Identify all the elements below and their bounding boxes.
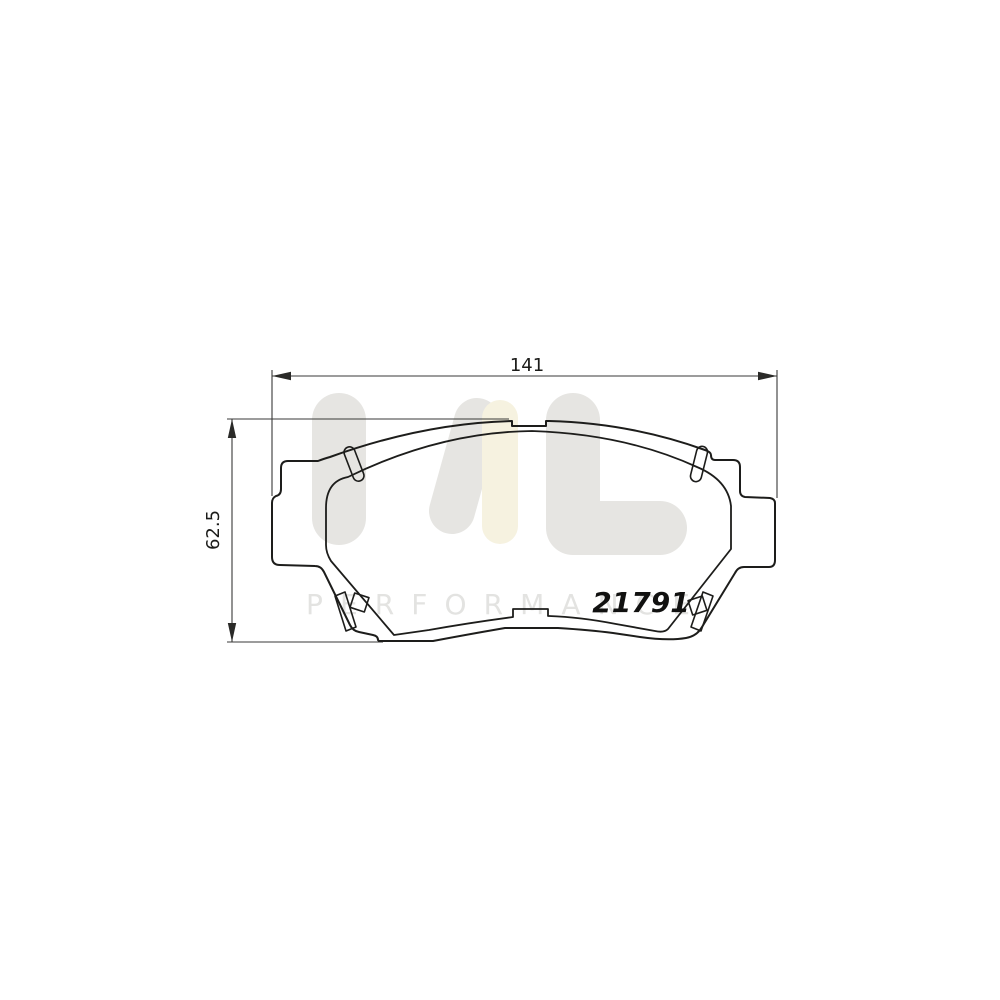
height-arrow-bottom	[228, 623, 236, 642]
part-number: 21791	[592, 586, 689, 619]
width-arrow-left	[272, 372, 291, 380]
watermark-m-diagonal-stroke	[452, 421, 477, 511]
product-image-canvas: PERFORMANCE 141 62.5	[0, 0, 1000, 1000]
width-dimension-label: 141	[510, 355, 544, 376]
brake-pad-technical-drawing: PERFORMANCE 141 62.5	[0, 0, 1000, 1000]
width-arrow-right	[758, 372, 777, 380]
height-arrow-top	[228, 419, 236, 438]
height-dimension-label: 62.5	[203, 510, 224, 550]
